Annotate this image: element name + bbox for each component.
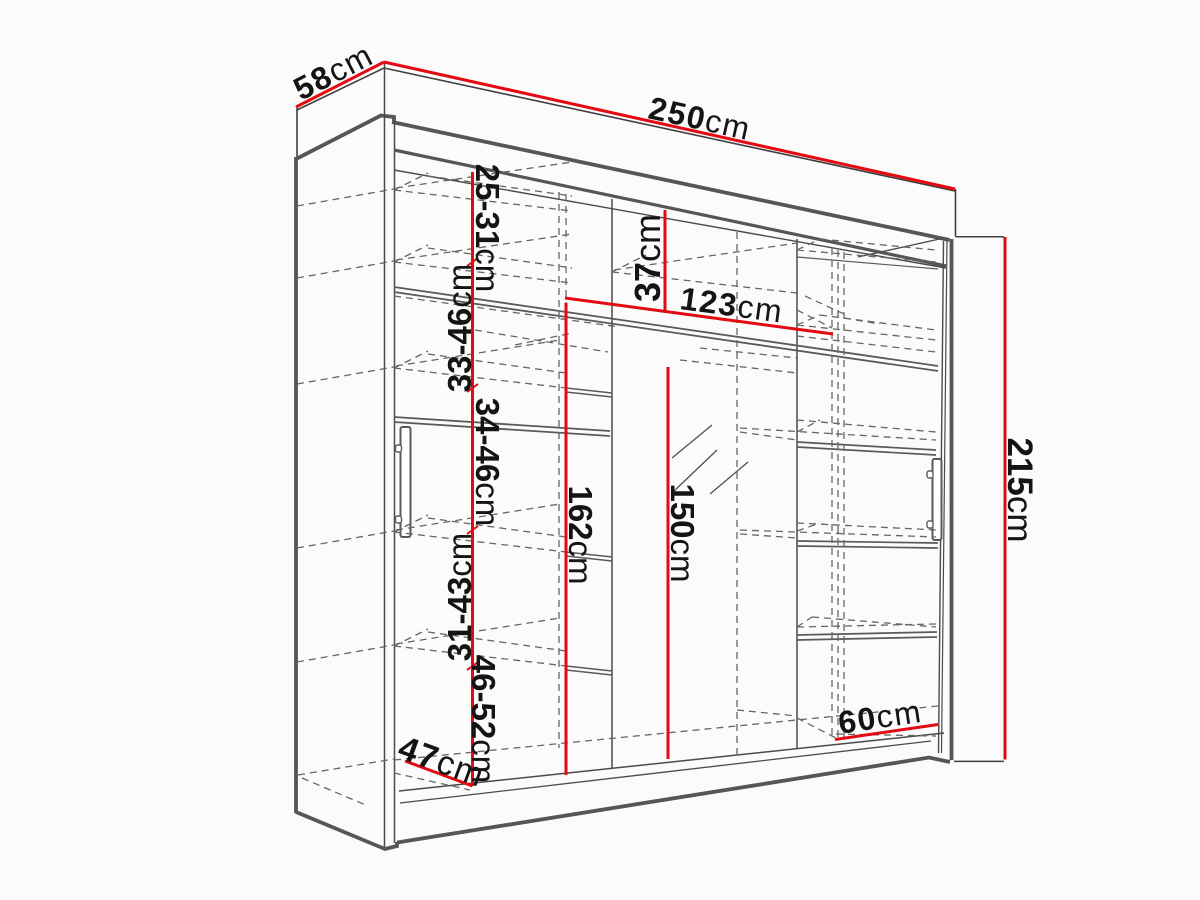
svg-text:215cm: 215cm bbox=[1000, 437, 1039, 542]
svg-text:162cm: 162cm bbox=[562, 485, 599, 584]
svg-text:31-43cm: 31-43cm bbox=[441, 533, 478, 661]
svg-text:34-46cm: 34-46cm bbox=[469, 398, 506, 526]
svg-text:150cm: 150cm bbox=[664, 483, 701, 582]
svg-text:37cm: 37cm bbox=[627, 214, 668, 302]
svg-text:46-52cm: 46-52cm bbox=[465, 655, 502, 783]
svg-text:33-46cm: 33-46cm bbox=[441, 264, 478, 392]
